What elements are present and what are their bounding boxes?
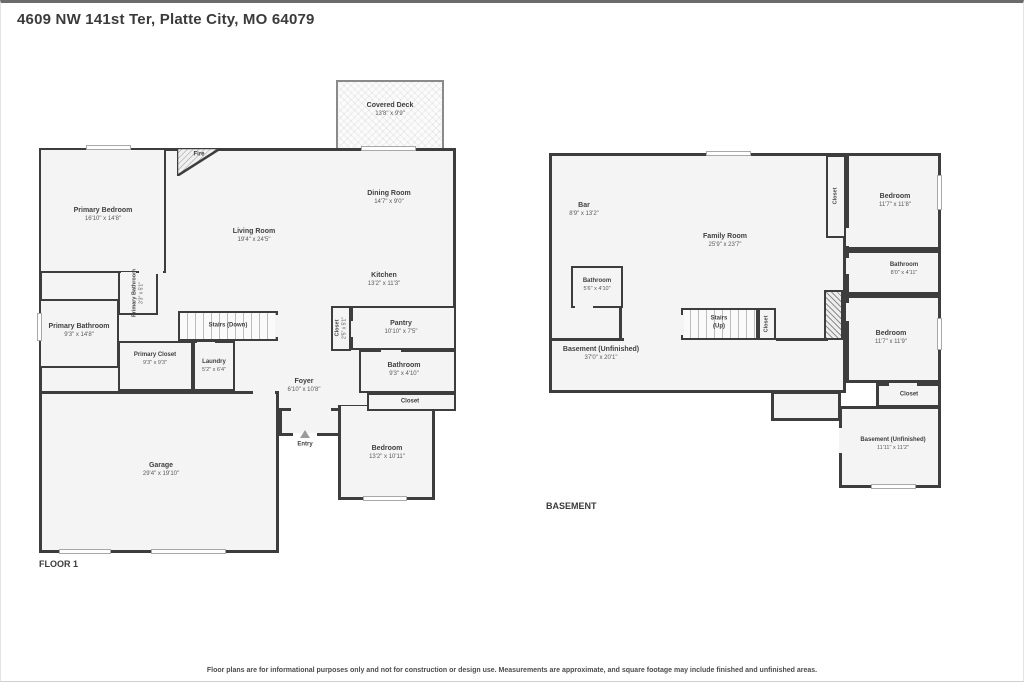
door-opening [291, 408, 331, 412]
door-opening [341, 406, 367, 409]
basement-title: BASEMENT [546, 501, 597, 511]
sliding-door [361, 146, 416, 151]
wall-segment [776, 338, 828, 341]
door-opening [846, 228, 849, 246]
entry-alcove [279, 408, 341, 436]
room-label-primary-closet: Primary Closet 9'3" x 9'3" [134, 352, 176, 366]
room-label-laundry: Laundry 5'2" x 6'4" [202, 359, 226, 373]
room-label-closet-top: Closet [833, 188, 840, 205]
floor1-title: FLOOR 1 [39, 559, 78, 569]
door-opening [681, 315, 684, 335]
window [363, 496, 407, 501]
room-label-kitchen: Kitchen 13'2" x 11'3" [368, 272, 400, 288]
door-opening [253, 391, 275, 395]
room-label-closet-foyer: Closet 2'5" x 5'1" [334, 317, 347, 339]
window [871, 484, 916, 489]
wall-segment [619, 308, 622, 341]
window [151, 549, 226, 554]
door-opening [846, 258, 849, 274]
window [937, 175, 942, 210]
door-opening [351, 321, 354, 337]
room-label-bar: Bar 8'9" x 13'2" [569, 202, 599, 218]
room-label-bedroom-f1: Bedroom 13'2" x 10'11" [369, 445, 405, 461]
room-label-bathroom-f1: Bathroom 9'3" x 4'10" [387, 362, 420, 378]
room-label-pantry: Pantry 10'10" x 7'5" [385, 320, 418, 336]
utility-hatch [824, 290, 843, 340]
room-label-bedroom-top: Bedroom 11'7" x 11'8" [879, 193, 911, 209]
room-label-living-room: Living Room 19'4" x 24'5" [233, 228, 275, 244]
room-label-family-room: Family Room 25'9" x 23'7" [703, 233, 747, 249]
door-opening [275, 315, 279, 337]
room-label-fire: Fire [193, 151, 204, 159]
window [706, 151, 751, 156]
room-label-closet-mid: Closet [900, 391, 918, 399]
stairs-down-label: Stairs (Down) [209, 322, 248, 330]
room-label-closet-stairs: Closet [764, 316, 771, 333]
room-label-dining-room: Dining Room 14'7" x 9'0" [367, 190, 411, 206]
door-opening [889, 383, 917, 386]
room-label-unfinished-small: Basement (Unfinished) 11'11" x 11'2" [860, 437, 925, 451]
wall-segment [549, 338, 624, 341]
room-label-covered-deck: Covered Deck 13'8" x 9'9" [367, 102, 414, 118]
window [37, 313, 42, 341]
door-opening [575, 305, 593, 309]
room-label-garage: Garage 29'4" x 19'10" [143, 462, 179, 478]
window [86, 145, 131, 150]
floor-plan-page: 4609 NW 141st Ter, Platte City, MO 64079 [0, 0, 1024, 682]
door-opening [197, 342, 215, 345]
door-opening [839, 428, 843, 453]
window [937, 318, 942, 350]
room-label-bathroom-right: Bathroom 8'0" x 4'11" [890, 262, 918, 276]
door-opening [846, 303, 849, 321]
door-opening [381, 350, 401, 353]
stairs-up-label: Stairs (Up) [711, 316, 728, 331]
page-title: 4609 NW 141st Ter, Platte City, MO 64079 [17, 11, 315, 28]
entry-arrow-icon [300, 430, 310, 438]
room-label-closet-hall: Closet [401, 398, 419, 406]
room-label-primary-bathroom: Primary Bathroom 9'3" x 14'8" [48, 323, 109, 339]
room-label-primary-bedroom: Primary Bedroom 16'10" x 14'8" [74, 207, 133, 223]
entry-label: Entry [297, 441, 312, 449]
room-label-bedroom-mid: Bedroom 11'7" x 11'9" [875, 330, 907, 346]
basement-step [771, 391, 841, 421]
room-label-foyer: Foyer 6'10" x 10'8" [288, 378, 321, 394]
window [59, 549, 111, 554]
room-label-primary-bath-wc: Primary Bathroom 3'3" x 5'1" [131, 269, 144, 317]
room-label-unfinished-main: Basement (Unfinished) 37'0" x 20'1" [563, 346, 639, 362]
room-label-bathroom-left: Bathroom 5'6" x 4'10" [583, 278, 611, 292]
disclaimer-text: Floor plans are for informational purpos… [1, 667, 1023, 674]
